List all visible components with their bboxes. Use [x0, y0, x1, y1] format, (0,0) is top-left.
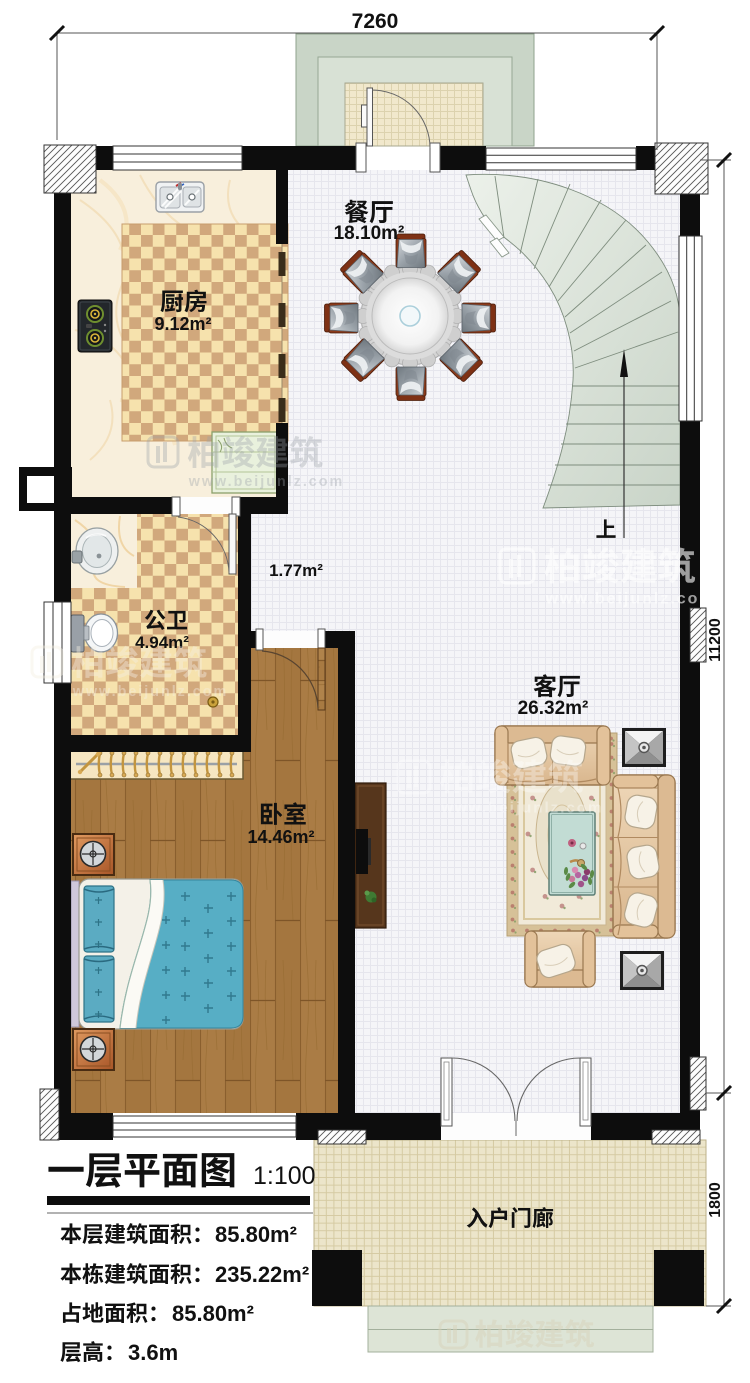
svg-text:18.10m²: 18.10m² [334, 223, 405, 244]
svg-text:3.6m: 3.6m [128, 1340, 178, 1365]
svg-text:1.77m²: 1.77m² [269, 561, 323, 580]
svg-text:14.46m²: 14.46m² [247, 827, 314, 847]
svg-text:11200: 11200 [707, 618, 724, 662]
svg-text:www.beijunlz.com: www.beijunlz.com [545, 591, 716, 608]
svg-text:1:100: 1:100 [253, 1162, 316, 1190]
svg-text:85.80m²: 85.80m² [172, 1301, 254, 1326]
svg-text:235.22m²: 235.22m² [215, 1262, 309, 1287]
svg-text:7260: 7260 [352, 10, 399, 33]
svg-text:www.beijunlz.com: www.beijunlz.com [188, 474, 344, 490]
svg-text:1800: 1800 [707, 1182, 724, 1218]
svg-text:85.80m²: 85.80m² [215, 1222, 297, 1247]
svg-text:26.32m²: 26.32m² [518, 698, 589, 719]
svg-text:9.12m²: 9.12m² [154, 314, 211, 334]
svg-text:www.beijunlz.com: www.beijunlz.com [440, 799, 603, 816]
svg-text:www.beijunlz.com: www.beijunlz.com [72, 684, 228, 700]
